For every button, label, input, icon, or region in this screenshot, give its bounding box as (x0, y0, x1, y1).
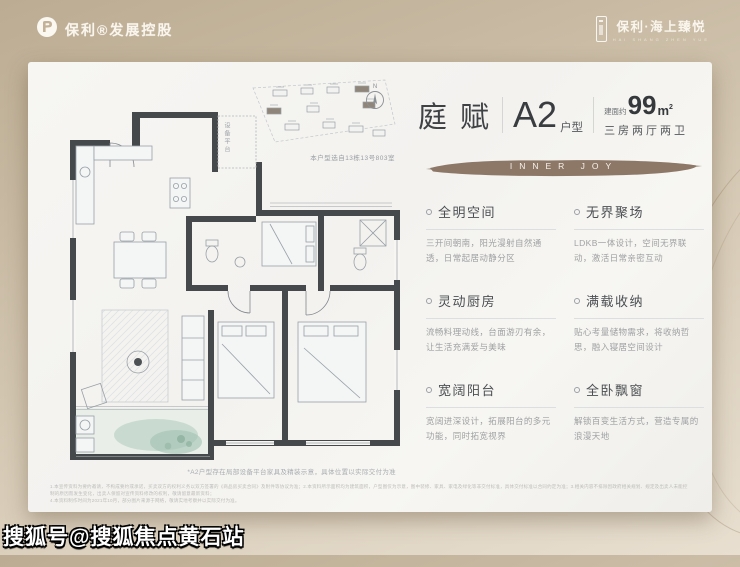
project-name: 保利·海上臻悦 (617, 16, 707, 35)
area-value: 99 (628, 92, 657, 118)
legal-disclaimer: 1.本宣传资料为要约邀请，不构成要约或承诺，买卖双方的权利义务以双方签署的《商品… (50, 483, 690, 504)
plan-footnote: *A2户型存在局部设备平台家具及精装示意，具体位置以实际交付为准 (128, 466, 396, 476)
feature-item: 灵动厨房 流畅料理动线，台面游刃有余，让生活充满爱与美味 (426, 291, 556, 367)
feature-item: 无界聚场 LDKB一体设计，空间无界联动，激活日常亲密互动 (574, 202, 704, 278)
seal-icon (596, 16, 607, 42)
unit-name: 庭赋 (418, 94, 502, 136)
feature-item: 全明空间 三开间朝南，阳光漫射自然通透，日常起居动静分区 (426, 202, 556, 278)
header-right-logo: 保利·海上臻悦 HAI SHANG ZHEN YUE (596, 16, 710, 42)
feature-bullet-icon (426, 298, 432, 304)
header-left-logo: 保利®发展控股 (36, 16, 173, 43)
divider (593, 97, 594, 133)
feature-bullet-icon (574, 209, 580, 215)
feature-item: 宽阔阳台 宽阔进深设计，拓展阳台的多元功能，同时拓宽视界 (426, 380, 556, 456)
project-name-en: HAI SHANG ZHEN YUE (613, 37, 710, 42)
poly-logo-icon (36, 16, 58, 43)
furniture (76, 146, 386, 452)
room-layout: 三房两厅两卫 (604, 122, 688, 138)
feature-item: 全卧飘窗 解锁百变生活方式，营造专属的浪漫天地 (574, 380, 704, 456)
feature-bullet-icon (574, 387, 580, 393)
balcony-area (76, 408, 208, 454)
device-platform-label: 设备平台 (222, 122, 231, 154)
plan-walls (70, 112, 400, 460)
area-prefix: 建面约 (604, 108, 627, 116)
feature-bullet-icon (426, 387, 432, 393)
site-caption: 本户型选自13栋13号803室 (245, 152, 395, 162)
unit-title-bar: 庭赋 A2 户型 建面约 99 m2 三房两厅两卫 (418, 92, 706, 138)
banner-text: INNER JOY (426, 161, 702, 171)
header-left-brand-text: 保利®发展控股 (65, 20, 173, 40)
living-room-rug (102, 310, 168, 402)
poster-card: 设备平台 本户型选自13栋13号803室 N 庭赋 A2 (28, 62, 712, 512)
feature-item: 满载收纳 贴心考量储物需求，将收纳哲思，融入寝居空间设计 (574, 291, 704, 367)
feature-grid: 全明空间 三开间朝南，阳光漫射自然通透，日常起居动静分区 无界聚场 LDKB一体… (426, 202, 706, 456)
unit-type: A2 (513, 97, 557, 133)
compass-icon: N (364, 84, 386, 110)
unit-type-suffix: 户型 (560, 119, 583, 135)
floor-plan (60, 110, 400, 465)
brush-banner: INNER JOY (426, 157, 702, 179)
divider (502, 97, 503, 133)
feature-bullet-icon (426, 209, 432, 215)
feature-bullet-icon (574, 298, 580, 304)
sohu-watermark: 搜狐号@搜狐焦点黄石站 (3, 521, 244, 551)
area-unit: m2 (657, 104, 672, 117)
